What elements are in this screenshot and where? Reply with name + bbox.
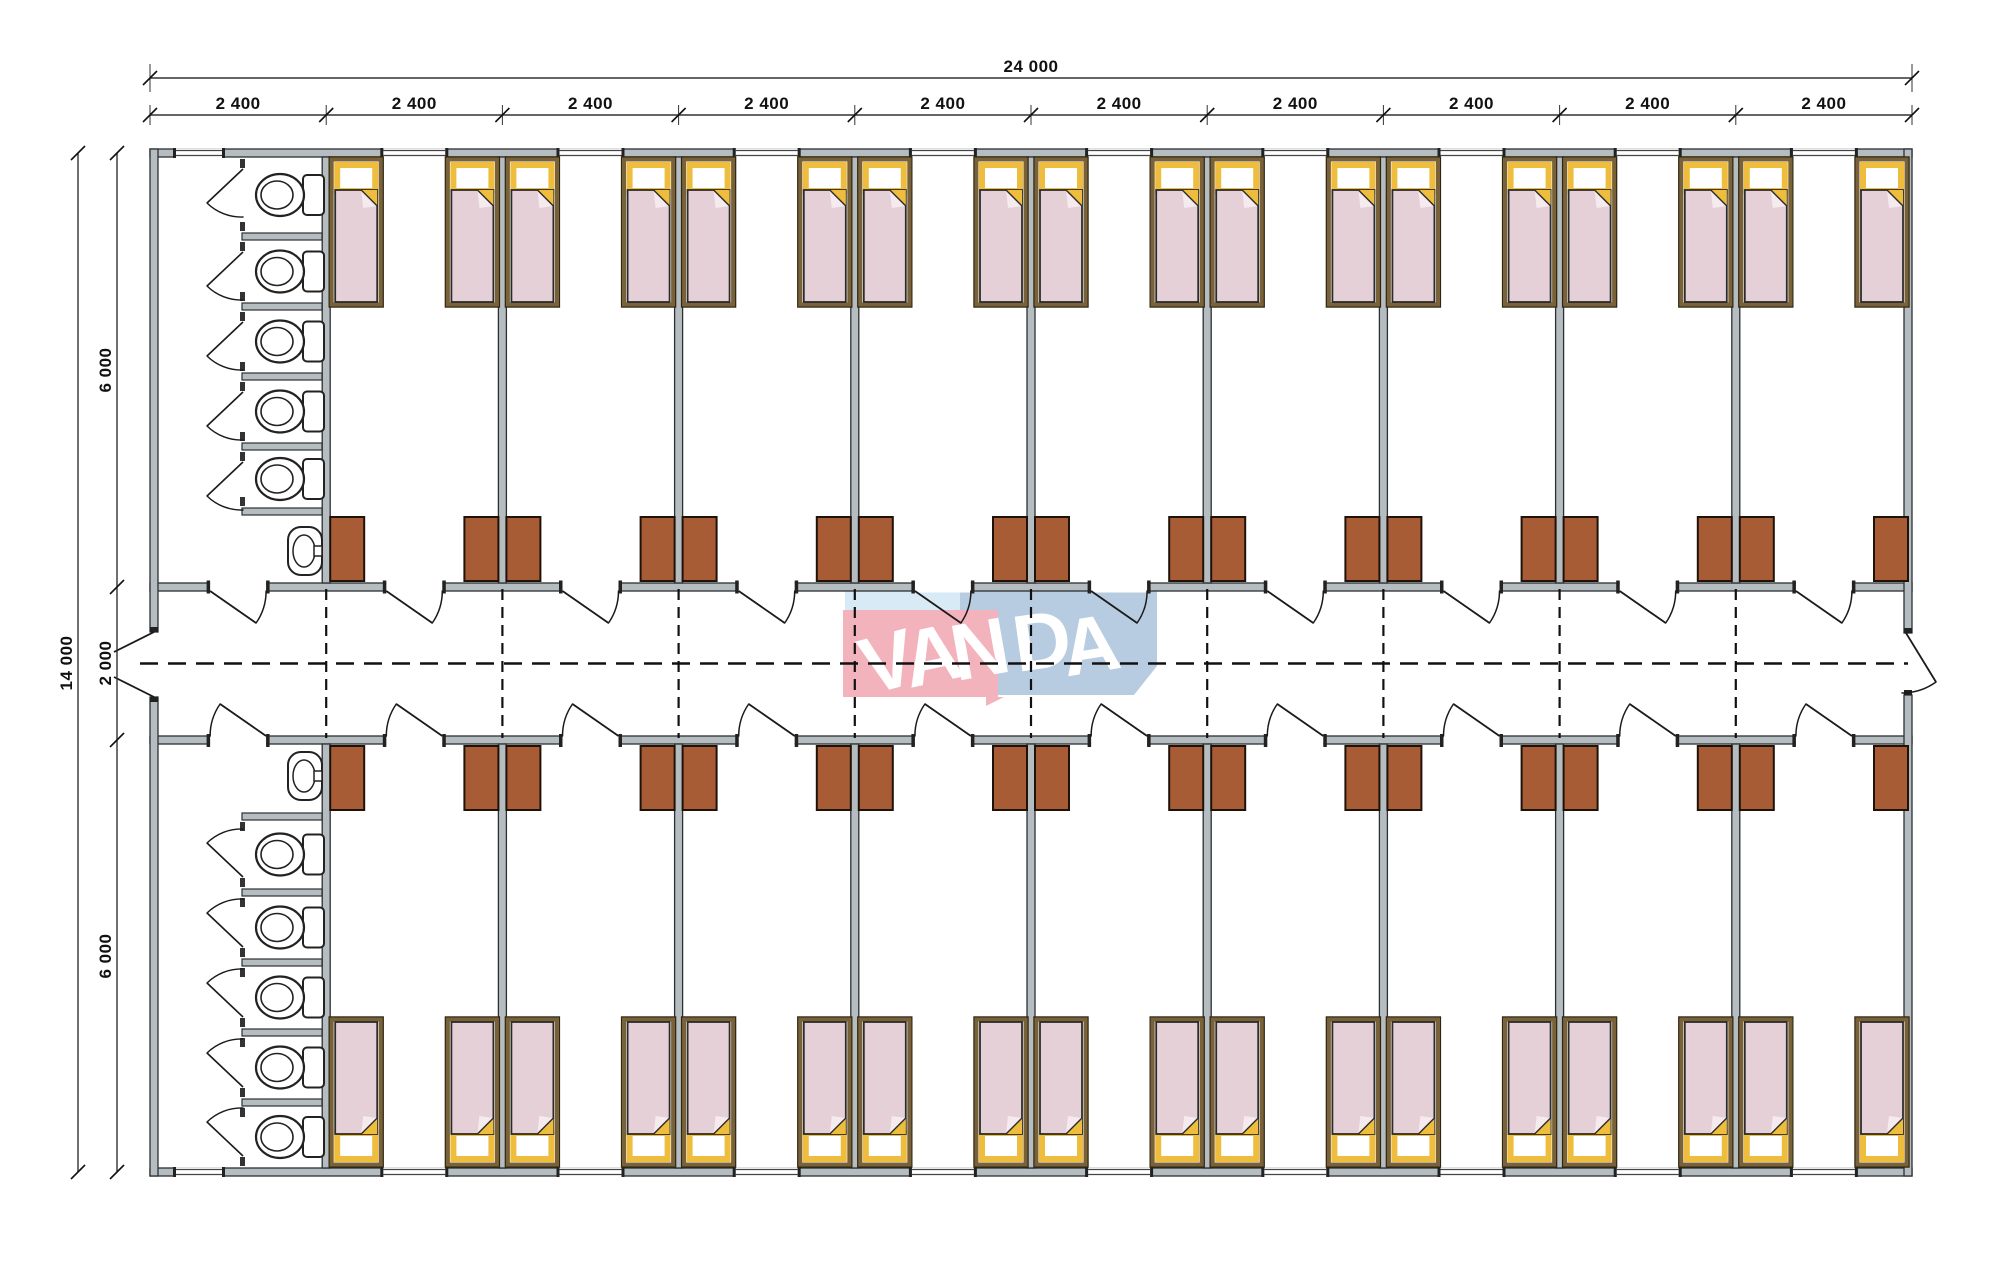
floor-plan-drawing: VANDA24 0002 4002 4002 4002 4002 4002 40… bbox=[0, 0, 2000, 1285]
bed-pillow bbox=[1042, 165, 1080, 191]
cabinet bbox=[1564, 746, 1598, 810]
door-opening bbox=[386, 735, 442, 746]
cabinet bbox=[1564, 517, 1598, 581]
toilet-tank bbox=[303, 835, 324, 875]
sink-basin bbox=[293, 760, 315, 792]
bed-pillow bbox=[1158, 165, 1196, 191]
cabinet bbox=[1211, 746, 1245, 810]
toilet-tank bbox=[303, 252, 324, 292]
cabinet bbox=[1698, 746, 1732, 810]
stall-partition bbox=[242, 443, 322, 450]
cabinet bbox=[330, 746, 364, 810]
cabinet bbox=[464, 746, 498, 810]
bed-pillow bbox=[630, 1133, 668, 1159]
toilet-bowl bbox=[256, 907, 304, 949]
door-opening bbox=[210, 735, 266, 746]
sink-tap bbox=[314, 546, 322, 556]
window-jamb bbox=[1326, 1167, 1329, 1177]
window-jamb bbox=[622, 1167, 625, 1177]
door-opening bbox=[1620, 735, 1676, 746]
stall-door-jamb bbox=[240, 312, 245, 321]
door-opening bbox=[1796, 582, 1852, 593]
stall-partition bbox=[242, 1099, 322, 1106]
stall-partition bbox=[242, 373, 322, 380]
window-jamb bbox=[1855, 1167, 1858, 1177]
sink-tap bbox=[314, 771, 322, 781]
door-opening bbox=[1267, 735, 1323, 746]
door-opening bbox=[210, 582, 266, 593]
bed-pillow bbox=[1394, 165, 1432, 191]
bed-pillow bbox=[1394, 1133, 1432, 1159]
bed-pillow bbox=[1571, 1133, 1609, 1159]
stall-door-jamb bbox=[240, 878, 245, 887]
dim-label-segment: 2 400 bbox=[744, 94, 789, 113]
cabinet bbox=[1874, 746, 1908, 810]
dim-label-segment: 2 400 bbox=[392, 94, 437, 113]
stall-door-jamb bbox=[240, 222, 245, 231]
dim-label-segment: 2 400 bbox=[1097, 94, 1142, 113]
cabinet bbox=[1387, 746, 1421, 810]
door-jamb bbox=[971, 734, 975, 747]
cabinet bbox=[993, 746, 1027, 810]
window-jamb bbox=[1150, 1167, 1153, 1177]
toilet-tank bbox=[303, 1117, 324, 1157]
bed-pillow bbox=[1863, 1133, 1901, 1159]
cabinet bbox=[506, 517, 540, 581]
toilet-bowl bbox=[256, 391, 304, 433]
door-opening bbox=[386, 582, 442, 593]
cabinet bbox=[1740, 517, 1774, 581]
bed-pillow bbox=[806, 1133, 844, 1159]
cabinet bbox=[464, 517, 498, 581]
cabinet bbox=[641, 746, 675, 810]
toilet-tank bbox=[303, 908, 324, 948]
dim-label-segment: 2 400 bbox=[216, 94, 261, 113]
window-jamb bbox=[557, 1167, 560, 1177]
door-jamb bbox=[1088, 581, 1092, 594]
stall-door-jamb bbox=[240, 1088, 245, 1097]
toilet-bowl bbox=[256, 1116, 304, 1158]
toilet-tank bbox=[303, 978, 324, 1018]
bed-pillow bbox=[630, 165, 668, 191]
door-opening bbox=[739, 735, 795, 746]
stall-partition bbox=[242, 1029, 322, 1036]
cabinet bbox=[1345, 517, 1379, 581]
cabinet bbox=[1035, 517, 1069, 581]
door-opening bbox=[563, 735, 619, 746]
stall-door-jamb bbox=[240, 1018, 245, 1027]
window-jamb bbox=[1790, 1167, 1793, 1177]
dim-label-segment: 2 400 bbox=[1273, 94, 1318, 113]
window-jamb bbox=[1503, 1167, 1506, 1177]
door-opening bbox=[915, 735, 971, 746]
cabinet bbox=[1874, 517, 1908, 581]
bed-pillow bbox=[690, 1133, 728, 1159]
cabinet bbox=[859, 517, 893, 581]
stall-door-jamb bbox=[240, 242, 245, 251]
door-opening bbox=[1620, 582, 1676, 593]
cabinet bbox=[683, 517, 717, 581]
bed-pillow bbox=[1747, 1133, 1785, 1159]
bed-pillow bbox=[1218, 1133, 1256, 1159]
stall-partition bbox=[242, 303, 322, 310]
cabinet bbox=[683, 746, 717, 810]
stall-door-jamb bbox=[240, 948, 245, 957]
bed-pillow bbox=[866, 165, 904, 191]
door-opening bbox=[915, 582, 971, 593]
door-jamb bbox=[795, 734, 799, 747]
door-jamb bbox=[735, 581, 739, 594]
wall-end-cap bbox=[150, 697, 158, 702]
dim-label-overall-width: 24 000 bbox=[1004, 57, 1059, 76]
toilet-bowl bbox=[256, 458, 304, 500]
cabinet bbox=[1169, 746, 1203, 810]
door-jamb bbox=[1616, 581, 1620, 594]
stall-door-jamb bbox=[240, 159, 245, 168]
cabinet bbox=[1522, 517, 1556, 581]
toilet-bowl bbox=[256, 834, 304, 876]
outer-wall-left bbox=[150, 149, 158, 632]
door-jamb bbox=[1147, 734, 1151, 747]
door-opening bbox=[1091, 582, 1147, 593]
door-opening bbox=[1267, 582, 1323, 593]
toilet-tank bbox=[303, 459, 324, 499]
door-jamb bbox=[442, 734, 446, 747]
stall-partition bbox=[242, 959, 322, 966]
toilet-tank bbox=[303, 322, 324, 362]
cabinet bbox=[641, 517, 675, 581]
dim-label-overall-height: 14 000 bbox=[57, 636, 76, 691]
cabinet bbox=[1522, 746, 1556, 810]
window-jamb bbox=[798, 1167, 801, 1177]
door-jamb bbox=[1500, 734, 1504, 747]
bed-pillow bbox=[982, 165, 1020, 191]
window-jamb bbox=[173, 148, 176, 158]
cabinet bbox=[1698, 517, 1732, 581]
window-jamb bbox=[380, 1167, 383, 1177]
toilet-tank bbox=[303, 1048, 324, 1088]
bed-pillow bbox=[337, 1133, 375, 1159]
door-opening bbox=[1444, 582, 1500, 593]
outer-wall-left bbox=[150, 697, 158, 1176]
dim-label-segment: 2 400 bbox=[1449, 94, 1494, 113]
window-jamb bbox=[173, 1167, 176, 1177]
bed-pillow bbox=[453, 1133, 491, 1159]
bed-pillow bbox=[513, 165, 551, 191]
toilet-bowl bbox=[256, 251, 304, 293]
bed-pillow bbox=[1158, 1133, 1196, 1159]
bed-pillow bbox=[1747, 165, 1785, 191]
bed-pillow bbox=[1687, 1133, 1725, 1159]
door-jamb bbox=[1323, 734, 1327, 747]
window-jamb bbox=[222, 1167, 225, 1177]
door-jamb bbox=[1852, 734, 1856, 747]
bed-pillow bbox=[806, 165, 844, 191]
bed-pillow bbox=[1511, 1133, 1549, 1159]
door-jamb bbox=[1440, 581, 1444, 594]
door-jamb bbox=[207, 581, 211, 594]
dim-label-left-segment: 6 000 bbox=[96, 933, 115, 978]
door-opening bbox=[1444, 735, 1500, 746]
window-jamb bbox=[1614, 1167, 1617, 1177]
dim-label-segment: 2 400 bbox=[1625, 94, 1670, 113]
window-jamb bbox=[1438, 1167, 1441, 1177]
bed-pillow bbox=[1042, 1133, 1080, 1159]
cabinet bbox=[330, 517, 364, 581]
window-jamb bbox=[974, 1167, 977, 1177]
toilet-bowl bbox=[256, 1047, 304, 1089]
stall-partition bbox=[242, 508, 322, 515]
toilet-bowl bbox=[256, 174, 304, 216]
cabinet bbox=[817, 746, 851, 810]
window-jamb bbox=[909, 1167, 912, 1177]
stall-door-jamb bbox=[240, 382, 245, 391]
cabinet bbox=[1035, 746, 1069, 810]
dim-label-segment: 2 400 bbox=[1801, 94, 1846, 113]
cabinet bbox=[1169, 517, 1203, 581]
bed-pillow bbox=[866, 1133, 904, 1159]
floor-plan-page: VANDA24 0002 4002 4002 4002 4002 4002 40… bbox=[0, 0, 2000, 1285]
cabinet bbox=[1740, 746, 1774, 810]
bed-pillow bbox=[453, 165, 491, 191]
toilet-bowl bbox=[256, 977, 304, 1019]
cabinet bbox=[859, 746, 893, 810]
stall-door-jamb bbox=[240, 497, 245, 506]
wall-end-cap bbox=[1904, 628, 1912, 633]
stall-door-jamb bbox=[240, 452, 245, 461]
door-jamb bbox=[1792, 581, 1796, 594]
window-jamb bbox=[1679, 1167, 1682, 1177]
dim-label-segment: 2 400 bbox=[568, 94, 613, 113]
dim-label-left-segment: 6 000 bbox=[96, 347, 115, 392]
bed-pillow bbox=[1863, 165, 1901, 191]
bed-pillow bbox=[1511, 165, 1549, 191]
window-jamb bbox=[1085, 1167, 1088, 1177]
bed-pillow bbox=[1334, 1133, 1372, 1159]
wall-end-cap bbox=[150, 627, 158, 632]
sink-basin bbox=[293, 535, 315, 567]
door-opening bbox=[1796, 735, 1852, 746]
door-opening bbox=[563, 582, 619, 593]
toilet-tank bbox=[303, 175, 324, 215]
bed-pillow bbox=[690, 165, 728, 191]
door-jamb bbox=[383, 581, 387, 594]
window-jamb bbox=[1261, 1167, 1264, 1177]
toilet-bowl bbox=[256, 321, 304, 363]
door-jamb bbox=[1264, 581, 1268, 594]
bed-pillow bbox=[1218, 165, 1256, 191]
bed-pillow bbox=[982, 1133, 1020, 1159]
bed-pillow bbox=[513, 1133, 551, 1159]
door-jamb bbox=[266, 734, 270, 747]
stall-partition bbox=[242, 889, 322, 896]
cabinet bbox=[993, 517, 1027, 581]
door-opening bbox=[1091, 735, 1147, 746]
cabinet bbox=[1387, 517, 1421, 581]
door-jamb bbox=[559, 581, 563, 594]
stall-door-jamb bbox=[240, 1157, 245, 1166]
window-jamb bbox=[222, 148, 225, 158]
cabinet bbox=[1345, 746, 1379, 810]
stall-partition bbox=[242, 233, 322, 240]
door-jamb bbox=[619, 734, 623, 747]
window-jamb bbox=[733, 1167, 736, 1177]
stall-door-jamb bbox=[240, 1108, 245, 1117]
stall-partition bbox=[242, 813, 322, 820]
cabinet bbox=[1211, 517, 1245, 581]
cabinet bbox=[817, 517, 851, 581]
bed-pillow bbox=[337, 165, 375, 191]
door-jamb bbox=[1676, 734, 1680, 747]
cabinet bbox=[506, 746, 540, 810]
bed-pillow bbox=[1687, 165, 1725, 191]
toilet-tank bbox=[303, 392, 324, 432]
bed-pillow bbox=[1334, 165, 1372, 191]
door-opening bbox=[739, 582, 795, 593]
bed-pillow bbox=[1571, 165, 1609, 191]
door-jamb bbox=[911, 581, 915, 594]
dim-label-left-segment: 2 000 bbox=[96, 640, 115, 685]
dim-label-segment: 2 400 bbox=[920, 94, 965, 113]
window-jamb bbox=[445, 1167, 448, 1177]
